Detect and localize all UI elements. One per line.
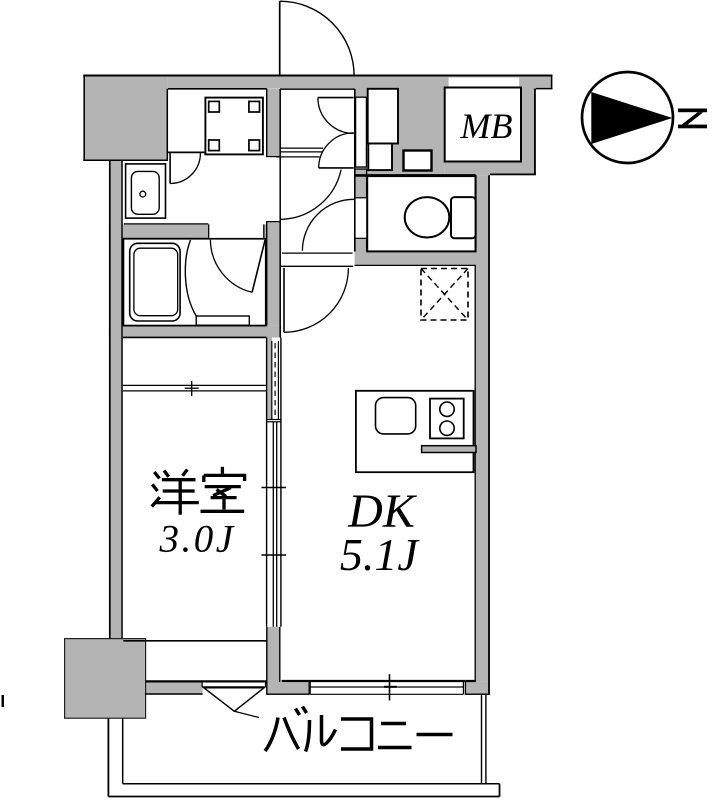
svg-text:3.0J: 3.0J — [158, 518, 235, 561]
svg-text:MB: MB — [460, 106, 513, 146]
svg-text:5.1J: 5.1J — [340, 529, 421, 580]
